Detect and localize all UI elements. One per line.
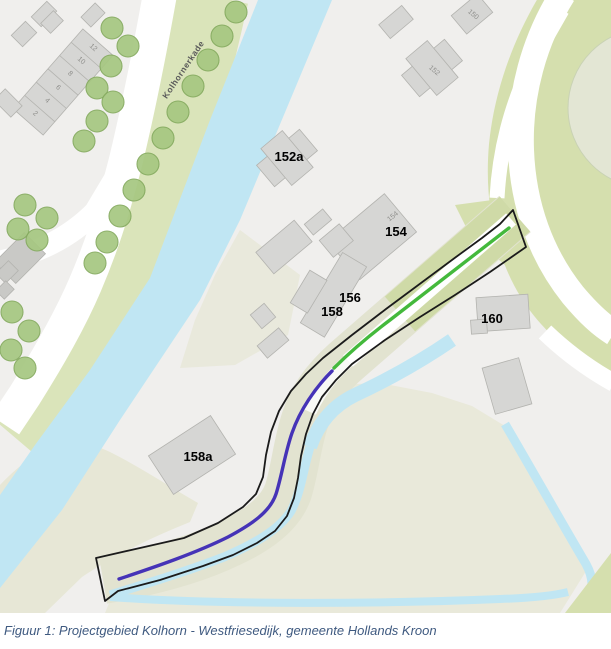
- figure-page: 2 4 6 8 10 12 150 152 154 Kolhornerkade …: [0, 0, 611, 649]
- label-154: 154: [385, 224, 407, 239]
- figure-caption: Figuur 1: Projectgebied Kolhorn - Westfr…: [0, 613, 611, 649]
- label-160: 160: [481, 311, 503, 326]
- label-156: 156: [339, 290, 361, 305]
- project-map: 2 4 6 8 10 12 150 152 154 Kolhornerkade …: [0, 0, 611, 613]
- label-152a: 152a: [275, 149, 305, 164]
- label-158a: 158a: [184, 449, 214, 464]
- label-158: 158: [321, 304, 343, 319]
